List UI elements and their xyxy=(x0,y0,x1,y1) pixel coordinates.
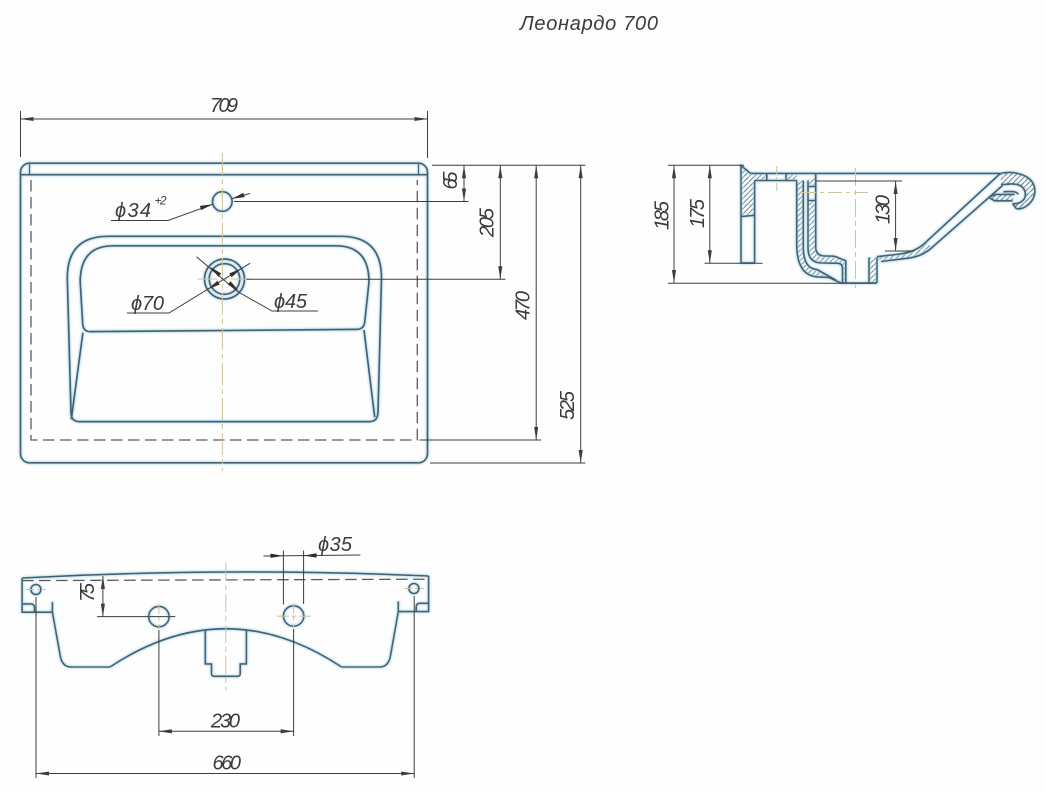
svg-text:75: 75 xyxy=(77,582,99,602)
svg-text:ϕ35: ϕ35 xyxy=(318,534,353,556)
svg-text:65: 65 xyxy=(440,171,462,190)
svg-text:+2: +2 xyxy=(155,194,167,208)
svg-text:ϕ70: ϕ70 xyxy=(131,293,164,315)
svg-text:525: 525 xyxy=(557,390,579,420)
svg-text:ϕ34: ϕ34 xyxy=(115,200,151,222)
svg-text:205: 205 xyxy=(477,207,499,238)
svg-text:ϕ45: ϕ45 xyxy=(274,291,308,313)
svg-text:Леонардо 700: Леонардо 700 xyxy=(518,13,658,35)
svg-text:130: 130 xyxy=(873,195,895,224)
svg-text:230: 230 xyxy=(210,711,240,733)
svg-text:185: 185 xyxy=(652,200,674,230)
svg-text:660: 660 xyxy=(213,753,242,775)
svg-text:470: 470 xyxy=(513,291,535,320)
svg-text:709: 709 xyxy=(210,95,238,117)
svg-text:175: 175 xyxy=(687,198,709,228)
